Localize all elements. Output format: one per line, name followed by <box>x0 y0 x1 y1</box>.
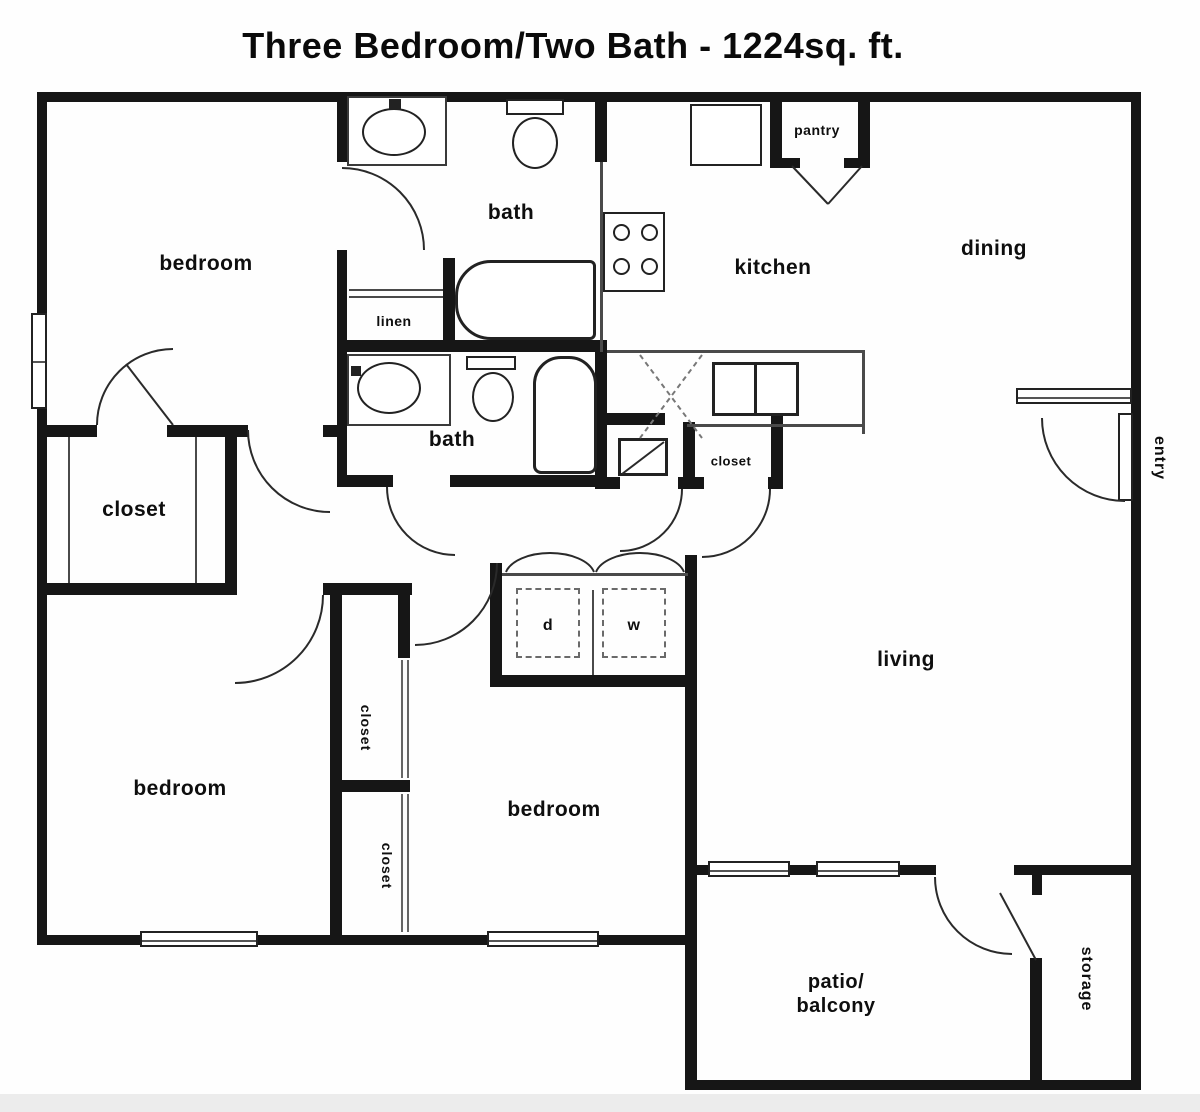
closet-rod-line <box>68 437 70 583</box>
pantry-door-leaf <box>828 166 862 204</box>
wall <box>337 340 607 352</box>
wall <box>1032 865 1042 895</box>
label-dryer: d <box>543 617 553 635</box>
label-washer: w <box>628 617 641 635</box>
door-arc <box>97 349 173 425</box>
room-label-closet-upper: closet <box>358 705 374 751</box>
wall <box>768 477 783 489</box>
wall <box>37 583 235 595</box>
kitchen-sink-basin <box>754 362 799 416</box>
wall <box>858 92 870 168</box>
wall <box>323 425 347 437</box>
door-arc <box>415 563 497 645</box>
room-label-pantry: pantry <box>794 122 840 138</box>
wall <box>490 675 697 687</box>
wall <box>225 425 237 595</box>
stove-burner <box>613 258 630 275</box>
wall <box>337 250 347 352</box>
room-label-storage: storage <box>1077 947 1095 1012</box>
room-label-closet-lower: closet <box>379 843 395 889</box>
wall <box>330 780 410 792</box>
wall <box>450 475 607 487</box>
linen-shelf-line <box>349 289 443 291</box>
wall <box>323 583 412 595</box>
room-label-patio-balcony: patio/ balcony <box>796 970 875 1018</box>
refrigerator <box>690 104 762 166</box>
toilet-tank <box>466 356 516 370</box>
door-arc <box>248 430 330 512</box>
wall-line <box>592 590 594 675</box>
stove <box>603 212 665 292</box>
water-heater-box <box>618 438 668 476</box>
stove-burner <box>613 224 630 241</box>
floor-plan: Three Bedroom/Two Bath - 1224sq. ft. <box>0 0 1200 1112</box>
bathroom-sink <box>362 108 426 156</box>
room-label-hall-closet: closet <box>711 454 752 469</box>
bifold-door-arc <box>596 553 684 572</box>
door-arc <box>702 489 770 557</box>
wall <box>595 92 607 162</box>
wall <box>898 865 936 875</box>
wall-line <box>502 573 688 576</box>
room-label-bath-lower: bath <box>429 428 475 452</box>
wall <box>1030 958 1042 1080</box>
plan-title: Three Bedroom/Two Bath - 1224sq. ft. <box>242 25 903 67</box>
entry-door-leaf <box>1118 413 1133 501</box>
room-label-bedroom-master: bedroom <box>159 252 252 276</box>
wall <box>770 158 800 168</box>
window <box>708 861 790 877</box>
door-leaf <box>1000 893 1036 960</box>
window <box>140 931 258 947</box>
door-leaf <box>126 364 173 425</box>
wall <box>443 258 455 352</box>
wall <box>337 92 347 162</box>
door-arc <box>342 168 424 250</box>
toilet-tank <box>506 99 564 115</box>
door-arc <box>620 489 682 551</box>
stove-burner <box>641 224 658 241</box>
stove-burner <box>641 258 658 275</box>
pantry-door-leaf <box>792 166 828 204</box>
linen-shelf-line <box>349 296 443 298</box>
patio-label-line2: balcony <box>796 994 875 1018</box>
room-label-bedroom-middle: bedroom <box>507 798 600 822</box>
window <box>816 861 900 877</box>
wall <box>788 865 816 875</box>
toilet-bowl <box>472 372 514 422</box>
wall <box>770 92 782 168</box>
patio-label-line1: patio/ <box>796 970 875 994</box>
room-label-linen: linen <box>376 313 411 329</box>
wall <box>337 475 393 487</box>
wall <box>37 92 47 945</box>
counter-edge <box>862 350 865 434</box>
room-label-bath-upper: bath <box>488 201 534 225</box>
room-label-kitchen: kitchen <box>734 256 811 280</box>
wall <box>490 563 502 687</box>
wall <box>685 1080 1141 1090</box>
shower-tub <box>533 356 597 474</box>
wall <box>685 555 697 1090</box>
wall <box>398 595 410 658</box>
room-label-bedroom-left: bedroom <box>133 777 226 801</box>
room-label-living: living <box>877 648 935 672</box>
faucet <box>351 366 361 376</box>
room-label-entry: entry <box>1150 436 1168 480</box>
closet-rod-line <box>195 437 197 583</box>
toilet-bowl <box>512 117 558 169</box>
entry-shelf <box>1016 388 1132 404</box>
window <box>487 931 599 947</box>
image-edge-band <box>0 1094 1200 1112</box>
door-arc <box>235 595 323 683</box>
room-label-dining: dining <box>961 237 1027 261</box>
wall <box>678 477 704 489</box>
wall <box>330 595 342 935</box>
bathtub <box>455 260 596 340</box>
wall <box>337 352 347 480</box>
faucet <box>389 99 401 109</box>
wall <box>37 425 97 437</box>
bathroom-sink <box>357 362 421 414</box>
wall <box>595 477 620 489</box>
counter-edge <box>705 424 863 427</box>
door-arc <box>1042 418 1125 501</box>
wall <box>600 413 665 425</box>
wall <box>1131 92 1141 1090</box>
window <box>31 313 47 409</box>
room-label-walkin-closet: closet <box>102 498 166 522</box>
wall <box>690 865 710 875</box>
door-arc <box>387 487 455 555</box>
door-arc <box>935 877 1012 954</box>
counter-edge <box>607 350 865 353</box>
bifold-door-arc <box>506 553 594 572</box>
kitchen-sink-basin <box>712 362 757 416</box>
wall <box>844 158 870 168</box>
wall <box>37 92 1141 102</box>
